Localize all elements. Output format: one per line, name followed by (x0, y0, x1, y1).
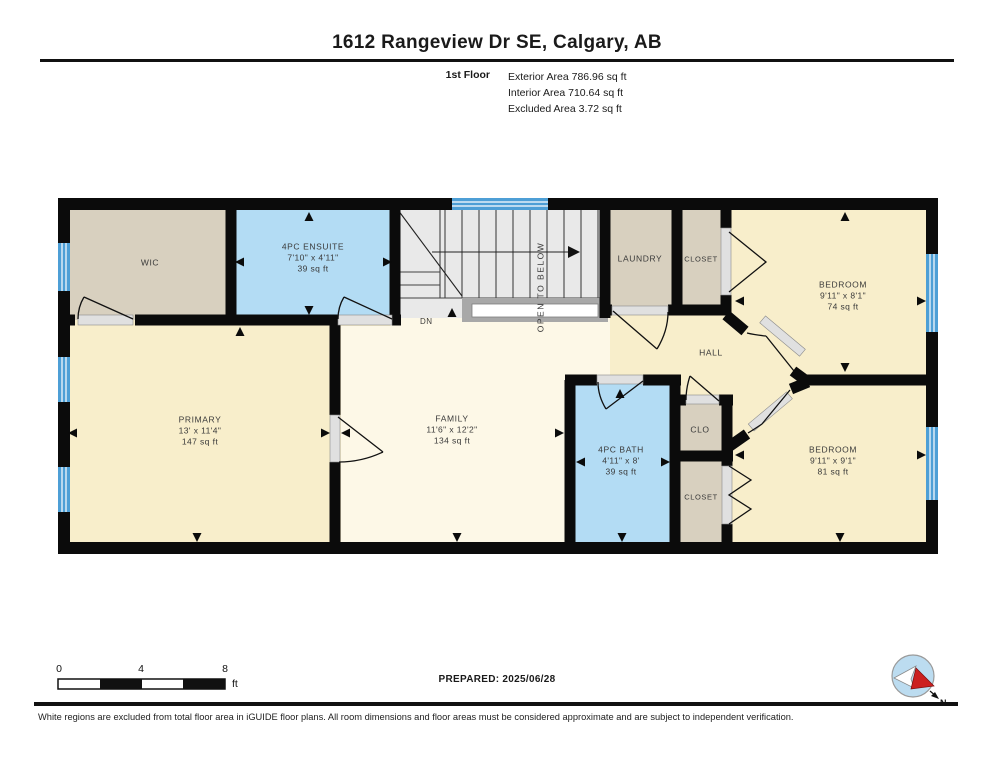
floorplan-page: 1612 Rangeview Dr SE, Calgary, AB 1st Fl… (0, 0, 994, 768)
room-label-bath: 4PC BATH 4'11" x 8' 39 sq ft (598, 445, 644, 478)
window-top (452, 198, 548, 210)
open-to-below-label: OPEN TO BELOW (536, 242, 547, 333)
prepared-date: PREPARED: 2025/06/28 (0, 674, 994, 685)
window-left-primary-2 (58, 467, 70, 512)
window-left-primary-1 (58, 357, 70, 402)
room-label-laundry: LAUNDRY (618, 254, 663, 265)
room-label-family: FAMILY 11'6" x 12'2" 134 sq ft (426, 414, 477, 447)
room-label-ensuite: 4PC ENSUITE 7'10" x 4'11" 39 sq ft (282, 242, 344, 275)
room-label-wic: WIC (141, 258, 159, 269)
window-right-bedroom-top (926, 254, 938, 332)
room-label-closet-top: CLOSET (684, 254, 718, 265)
window-right-bedroom-bottom (926, 427, 938, 500)
stairs-dn-label: DN (420, 317, 433, 326)
room-label-hall: HALL (699, 348, 723, 359)
room-label-clo: CLO (690, 425, 709, 436)
window-left-wic (58, 243, 70, 291)
room-label-closet-bottom: CLOSET (684, 492, 718, 503)
room-label-bedroom-top: BEDROOM 9'11" x 8'1" 74 sq ft (819, 280, 867, 313)
floor-plan-svg: N (0, 0, 994, 768)
disclaimer-text: White regions are excluded from total fl… (38, 712, 968, 722)
room-label-bedroom-bottom: BEDROOM 9'11" x 9'1" 81 sq ft (809, 445, 857, 478)
footer-divider (34, 702, 958, 706)
room-label-primary: PRIMARY 13' x 11'4" 147 sq ft (179, 415, 222, 448)
